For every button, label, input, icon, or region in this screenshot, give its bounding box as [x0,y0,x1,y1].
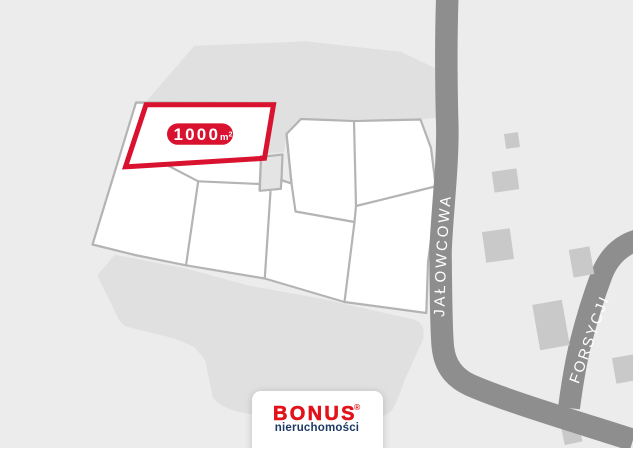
svg-text:nieruchomości: nieruchomości [275,422,359,434]
svg-text:®: ® [354,402,361,412]
svg-text:1000: 1000 [174,125,221,144]
